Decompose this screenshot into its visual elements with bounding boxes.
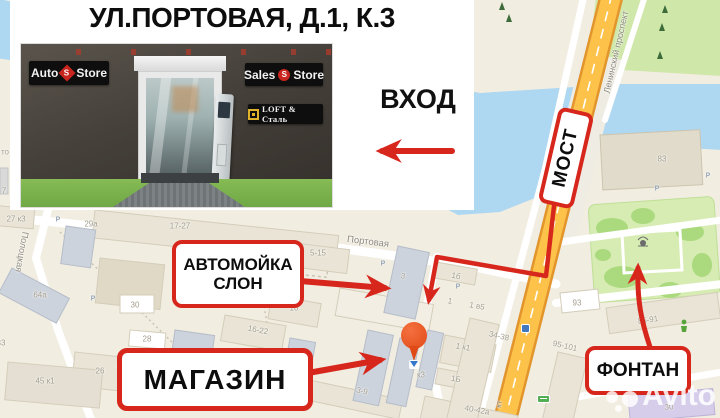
route-line	[429, 206, 554, 300]
shop-arrow	[308, 360, 380, 373]
carwash-callout-text: АВТОМОЙКА	[183, 255, 292, 274]
carwash-arrow	[300, 281, 385, 288]
shop-callout-text: МАГАЗИН	[144, 364, 287, 395]
avito-watermark: Avito	[606, 378, 716, 414]
annotated-map-image: 27 к329а17-275-1564а301816-22282645 к133…	[0, 0, 720, 418]
bridge-callout-text: МОСТ	[549, 127, 583, 190]
carwash-callout-text: СЛОН	[213, 274, 262, 293]
avito-watermark-text: Avito	[642, 379, 716, 413]
fountain-arrow	[638, 268, 650, 347]
shop-callout: МАГАЗИН	[117, 348, 313, 411]
avito-logo-icon	[606, 378, 640, 414]
carwash-callout: АВТОМОЙКА СЛОН	[172, 240, 304, 308]
